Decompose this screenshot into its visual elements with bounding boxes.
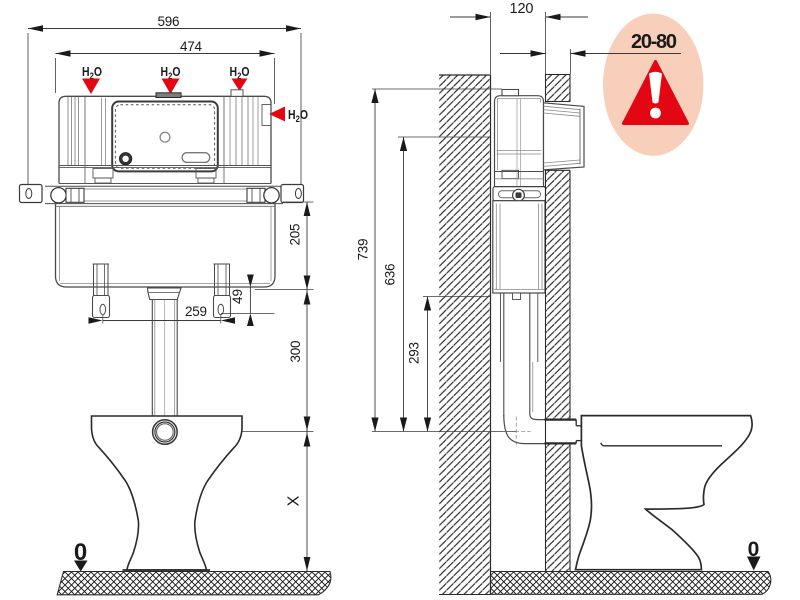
svg-text:636: 636 (383, 264, 398, 286)
svg-text:X: X (286, 495, 303, 506)
svg-text:120: 120 (510, 1, 534, 17)
svg-text:739: 739 (356, 239, 371, 261)
svg-text:259: 259 (185, 304, 207, 319)
svg-text:20-80: 20-80 (631, 31, 677, 53)
svg-text:205: 205 (288, 224, 303, 246)
svg-text:293: 293 (407, 342, 422, 364)
svg-text:300: 300 (288, 341, 303, 363)
svg-text:474: 474 (180, 39, 202, 54)
svg-text:596: 596 (158, 14, 180, 29)
svg-text:49: 49 (230, 289, 245, 304)
